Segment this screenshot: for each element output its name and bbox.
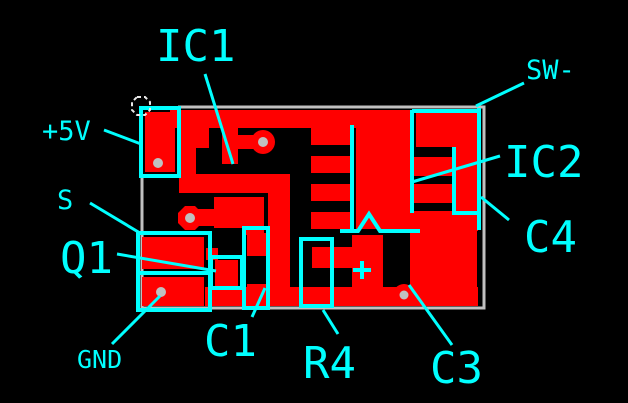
leader-r4 bbox=[323, 310, 338, 334]
leader-s bbox=[90, 203, 140, 233]
label-ic1[interactable]: IC1 bbox=[156, 21, 235, 72]
leader-sw bbox=[476, 83, 524, 106]
leader-5v bbox=[104, 130, 141, 144]
ic1-pad-row1[interactable] bbox=[311, 128, 350, 145]
q1-pad[interactable] bbox=[215, 260, 238, 290]
hole-octagon-pad bbox=[185, 213, 195, 223]
hole-5v-pad bbox=[153, 158, 163, 168]
label-q1[interactable]: Q1 bbox=[60, 233, 113, 284]
pcb-canvas: +5V S Q1 GND IC1 C1 R4 C3 C4 IC2 SW- bbox=[0, 0, 628, 403]
label-ic2[interactable]: IC2 bbox=[504, 137, 583, 188]
pcb-drawing: +5V S Q1 GND IC1 C1 R4 C3 C4 IC2 SW- bbox=[0, 0, 628, 403]
copper-pour-center[interactable] bbox=[356, 110, 410, 229]
pad-gnd-fill[interactable] bbox=[142, 277, 204, 306]
trace-vert-d[interactable] bbox=[268, 193, 290, 293]
hole-gnd-pad bbox=[156, 287, 166, 297]
hole-c3-pad bbox=[400, 291, 409, 300]
ic1-pad-row2[interactable] bbox=[311, 156, 350, 173]
trace-blob[interactable] bbox=[214, 197, 248, 228]
copper-layer[interactable] bbox=[142, 110, 478, 306]
copper-pour-right[interactable] bbox=[410, 228, 477, 306]
ic2-pad-row3[interactable] bbox=[407, 211, 452, 230]
c1-pad-top[interactable] bbox=[247, 233, 266, 256]
ic1-pad-row4[interactable] bbox=[311, 212, 350, 229]
trace-horiz-b[interactable] bbox=[179, 174, 290, 193]
label-c3[interactable]: C3 bbox=[430, 343, 483, 394]
label-r4[interactable]: R4 bbox=[303, 338, 356, 389]
label-sw[interactable]: SW- bbox=[526, 55, 575, 86]
label-layer: +5V S Q1 GND IC1 C1 R4 C3 C4 IC2 SW- bbox=[42, 21, 583, 394]
label-c1[interactable]: C1 bbox=[204, 316, 257, 367]
copper-block-topright[interactable] bbox=[416, 112, 478, 147]
trace-bulge[interactable] bbox=[179, 128, 209, 148]
label-c4[interactable]: C4 bbox=[524, 212, 577, 263]
ic1-pad-row3[interactable] bbox=[311, 184, 350, 201]
label-plus5v[interactable]: +5V bbox=[42, 116, 91, 147]
cap-block[interactable] bbox=[352, 235, 383, 287]
label-gnd[interactable]: GND bbox=[77, 345, 122, 374]
label-s[interactable]: S bbox=[57, 185, 73, 216]
hole-round-pad bbox=[258, 137, 268, 147]
